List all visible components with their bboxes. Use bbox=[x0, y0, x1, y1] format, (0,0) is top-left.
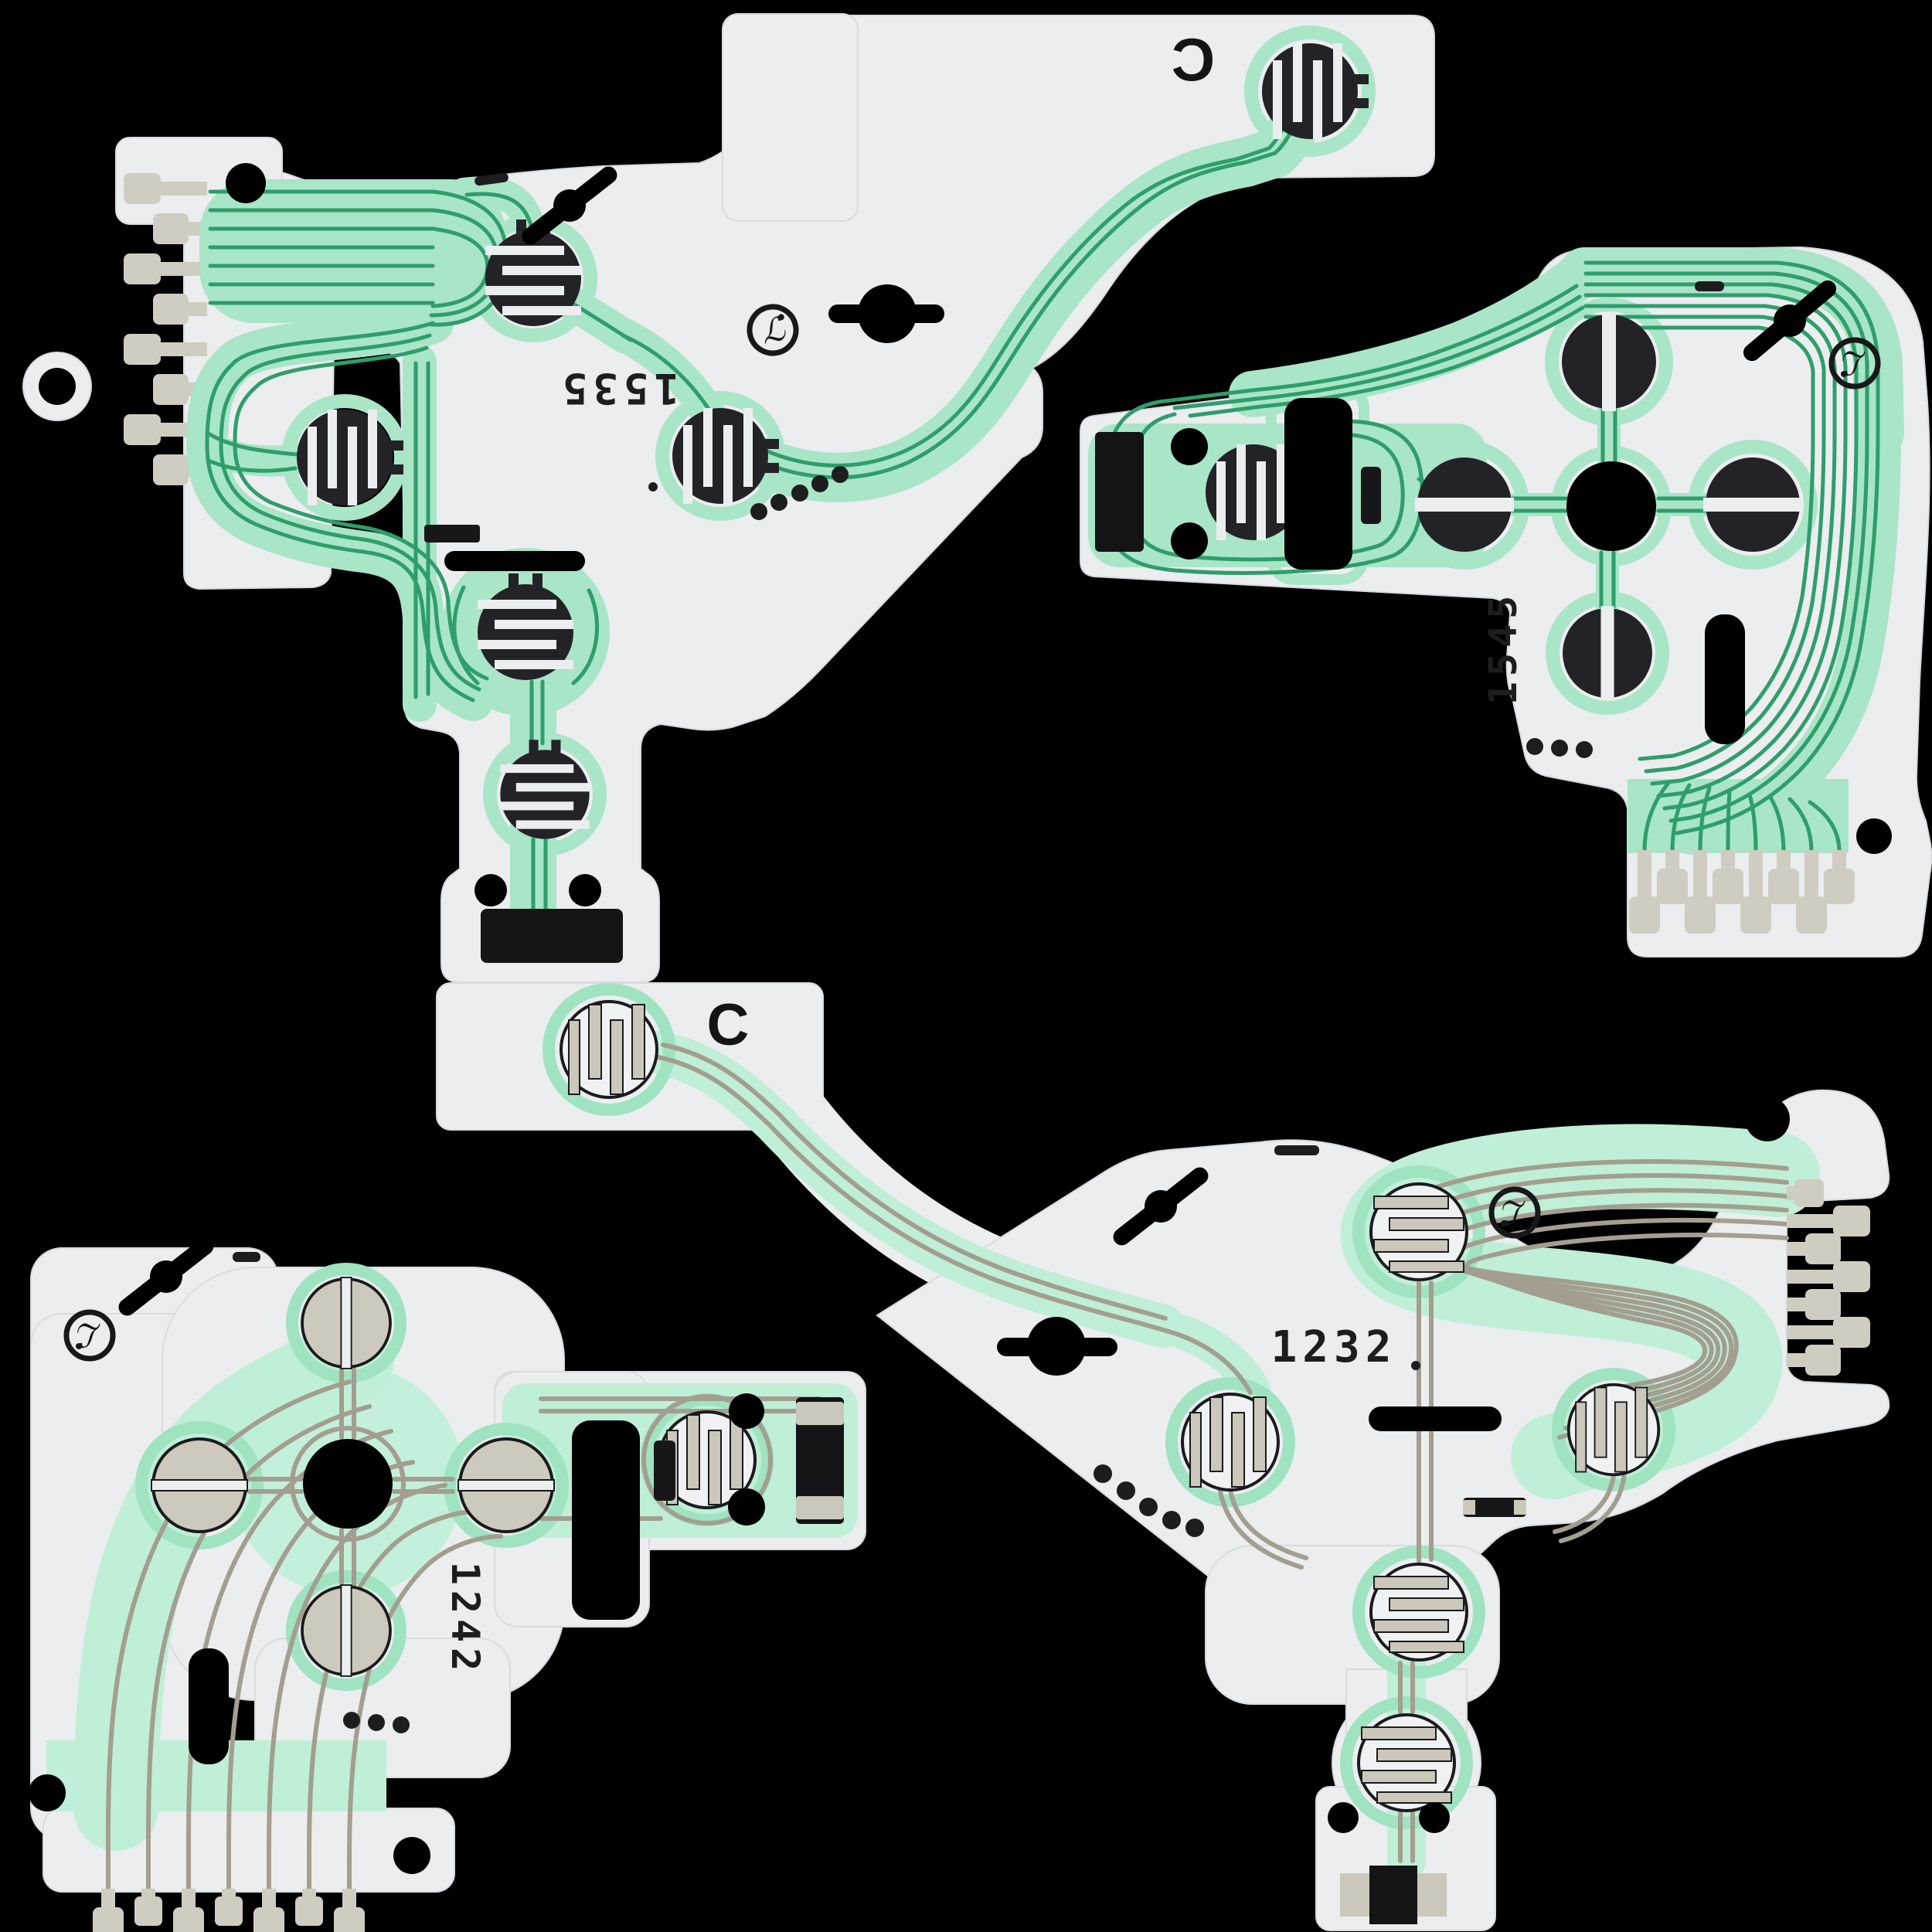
batch-code: 1232 bbox=[1271, 1322, 1397, 1372]
batch-code: 1242 bbox=[443, 1562, 488, 1676]
batch-code: 1545 bbox=[1481, 590, 1526, 705]
product-photo-canvas: ℒ bbox=[0, 0, 1932, 1932]
batch-code: 1535 bbox=[557, 364, 679, 413]
strip-letter: C bbox=[1172, 26, 1215, 94]
strip-letter: C bbox=[707, 992, 750, 1058]
